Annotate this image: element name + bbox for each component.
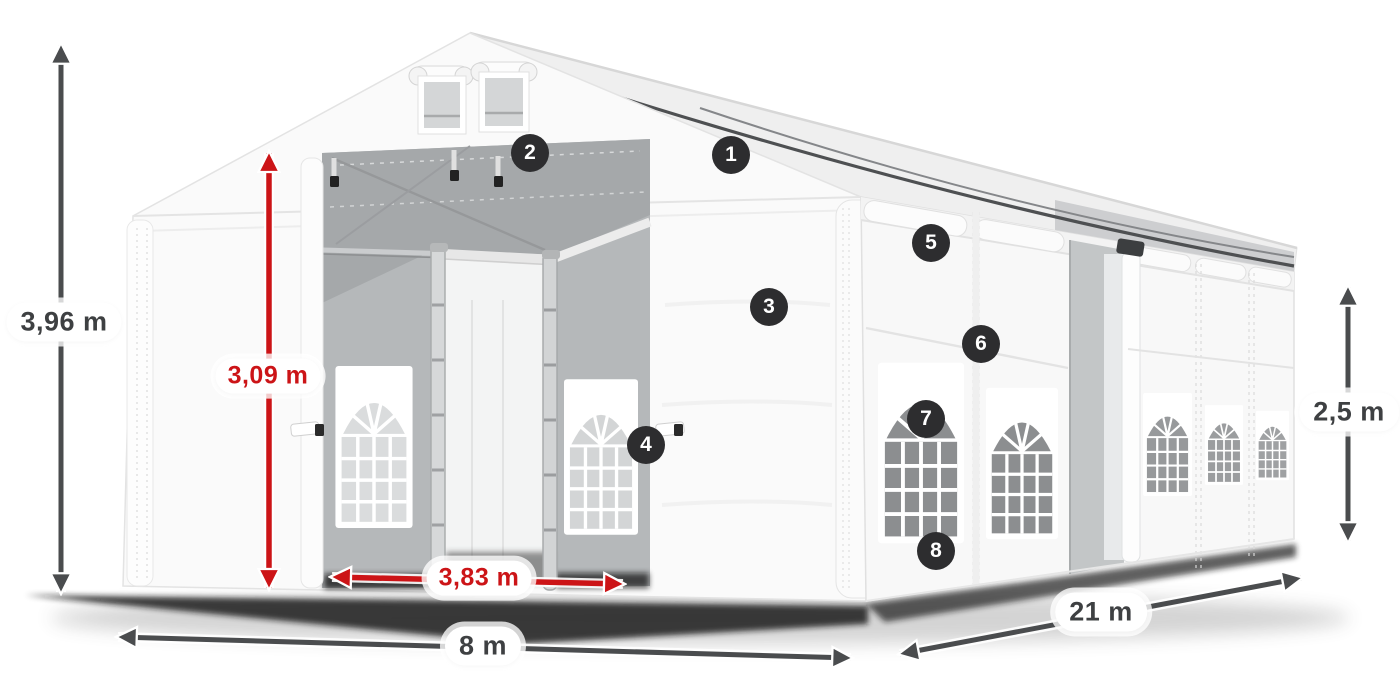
callout-7: 7 [907,400,945,438]
interior-window-left [335,366,412,528]
callout-5: 5 [912,224,950,262]
module-gap [1070,238,1145,574]
gable-vent-left [409,66,473,134]
gable-vent-right [471,62,537,132]
tent-diagram-stage: 3,96 m 3,09 m 3,83 m 8 m 21 m 2,5 m 1 2 … [0,0,1400,700]
dimension-label-width: 8 m [445,626,521,665]
dimension-label-entrance-height: 3,09 m [216,359,321,394]
dimension-label-total-height: 3,96 m [6,302,121,341]
callout-2: 2 [511,134,549,172]
side-window-2 [986,388,1058,539]
callout-6: 6 [962,325,1000,363]
door-frame-pole-right [542,250,560,590]
tent [123,33,1297,601]
side-window-1 [878,363,964,544]
front-left-corner-band [127,220,153,586]
dimension-label-entrance-width: 3,83 m [427,561,532,596]
callout-4: 4 [627,426,665,464]
door-frame-pole-left [430,243,448,588]
left-door-handle [290,422,324,437]
tent-illustration [0,0,1400,700]
entrance-interior [322,139,650,590]
callout-8: 8 [917,532,955,570]
strap-buckle [494,176,503,187]
strap-buckle [330,176,339,187]
side-window-3 [1143,393,1192,496]
interior-window-right [564,379,638,534]
vent-pane [485,78,523,126]
side-window-4 [1205,405,1243,485]
module-gap-far-panel [1104,254,1124,560]
through-view [444,252,555,586]
dimension-label-side-height: 2,5 m [1299,392,1399,431]
strap-buckle [450,170,459,181]
callout-3: 3 [750,288,788,326]
side-window-5 [1256,411,1289,480]
far-module-corner-post [1122,252,1140,562]
vent-pane [424,82,460,128]
callout-1: 1 [712,136,750,174]
dimension-label-length: 21 m [1055,592,1147,631]
